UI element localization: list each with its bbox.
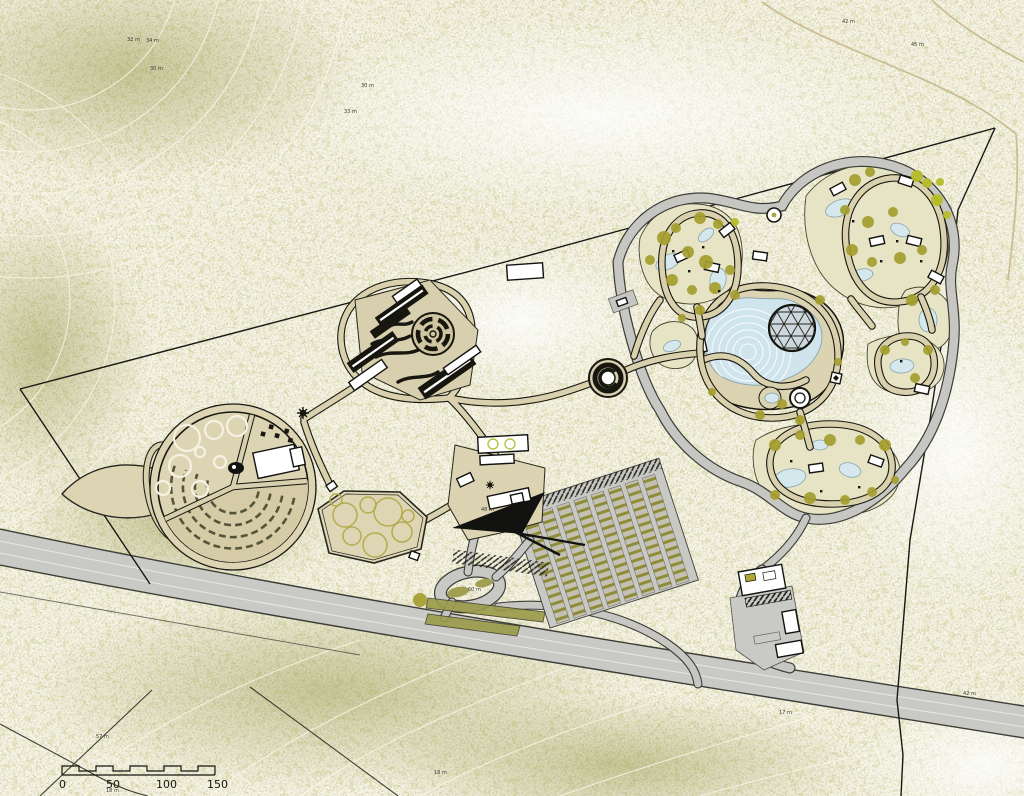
circular-garden-feature: [412, 313, 454, 355]
contour-elevation-label: 60 m: [468, 587, 481, 593]
contour-elevation-label: 57 m: [96, 734, 109, 740]
building: [507, 263, 544, 280]
contour-elevation-label: 42 m: [963, 691, 976, 697]
scale-label: 100: [156, 778, 177, 791]
geodesic-dome: [769, 305, 815, 351]
site-plan-canvas: 32 m 34 m 30 m 30 m 33 m 45 m 42 m 48 m …: [0, 0, 1024, 796]
contour-elevation-label: 30 m: [361, 83, 374, 89]
scale-label: 0: [59, 778, 66, 791]
contour-elevation-label: 30 m: [150, 66, 163, 72]
contour-elevation-label: 17 m: [779, 710, 792, 716]
contour-elevation-label: 48 m: [481, 507, 494, 513]
contour-elevation-label: 34 m: [146, 38, 159, 44]
contour-elevation-label: 32 m: [127, 37, 140, 43]
scale-label: 150: [207, 778, 228, 791]
contour-elevation-label: 45 m: [911, 42, 924, 48]
contour-elevation-label: 33 m: [344, 109, 357, 115]
contour-elevation-label: 42 m: [842, 19, 855, 25]
contour-elevation-label: 18 m: [434, 770, 447, 776]
spiral-lookout-roundabout: [589, 359, 627, 397]
scale-label: 50: [106, 778, 120, 791]
